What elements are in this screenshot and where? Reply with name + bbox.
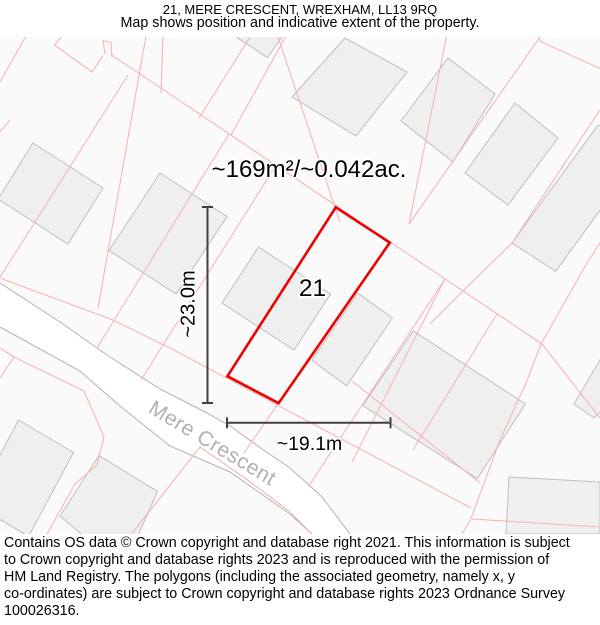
svg-text:~169m²/~0.042ac.: ~169m²/~0.042ac. bbox=[212, 156, 407, 183]
svg-text:~23.0m: ~23.0m bbox=[178, 270, 200, 337]
svg-text:21: 21 bbox=[299, 275, 326, 302]
svg-text:~19.1m: ~19.1m bbox=[277, 433, 343, 455]
